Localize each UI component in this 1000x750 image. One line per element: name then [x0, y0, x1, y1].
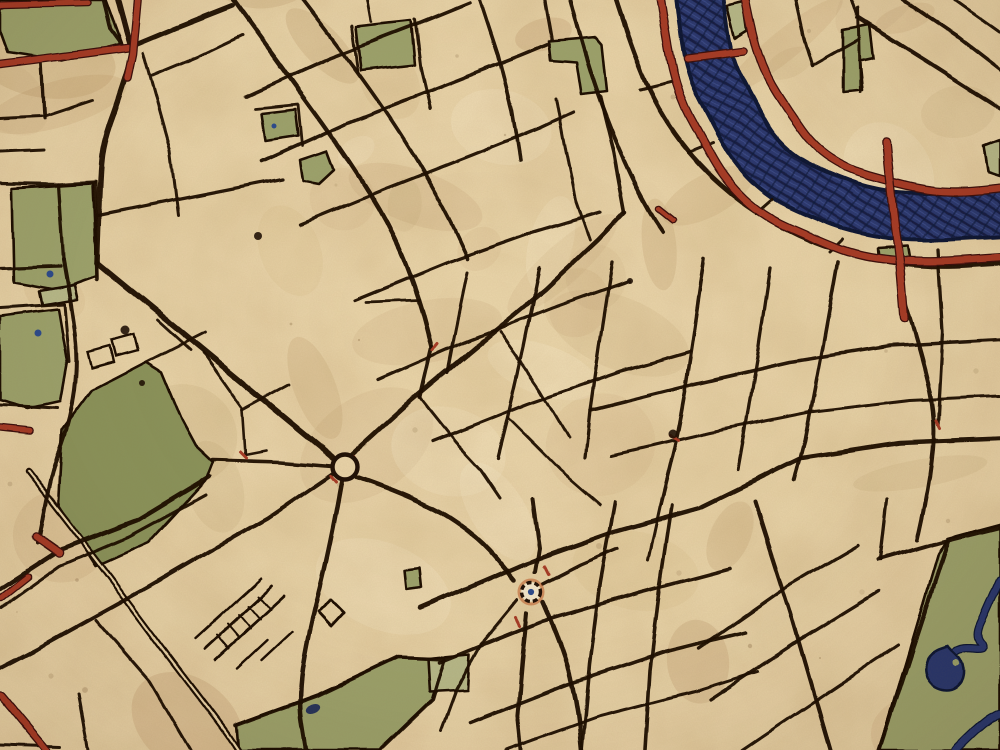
watercolor-city-map — [0, 0, 1000, 750]
paper-grain-overlay — [0, 0, 1000, 750]
map-canvas — [0, 0, 1000, 750]
